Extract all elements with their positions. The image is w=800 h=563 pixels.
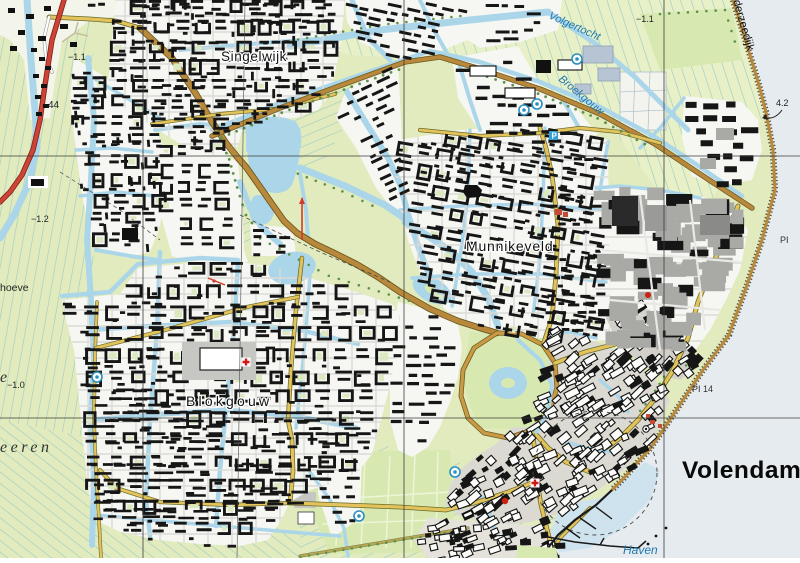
svg-text:−1.1: −1.1 xyxy=(68,52,86,62)
svg-text:Blokgouw: Blokgouw xyxy=(186,393,272,409)
svg-text:e: e xyxy=(0,369,7,386)
svg-text:Volendam: Volendam xyxy=(682,457,800,484)
svg-text:Munnikeveld: Munnikeveld xyxy=(466,238,553,254)
svg-text:P: P xyxy=(552,132,558,141)
svg-text:−1.2: −1.2 xyxy=(31,214,49,224)
svg-text:Haven: Haven xyxy=(623,543,658,557)
svg-text:eeren: eeren xyxy=(0,439,52,456)
svg-text:−1.0: −1.0 xyxy=(7,380,25,390)
svg-text:PI 14: PI 14 xyxy=(692,384,713,394)
svg-text:4.2: 4.2 xyxy=(776,98,789,108)
svg-text:Singelwijk: Singelwijk xyxy=(221,49,287,64)
svg-text:−1.1: −1.1 xyxy=(636,14,654,24)
svg-text:44: 44 xyxy=(48,100,60,111)
svg-text:hoeve: hoeve xyxy=(0,282,29,294)
svg-text:PI: PI xyxy=(780,235,789,245)
